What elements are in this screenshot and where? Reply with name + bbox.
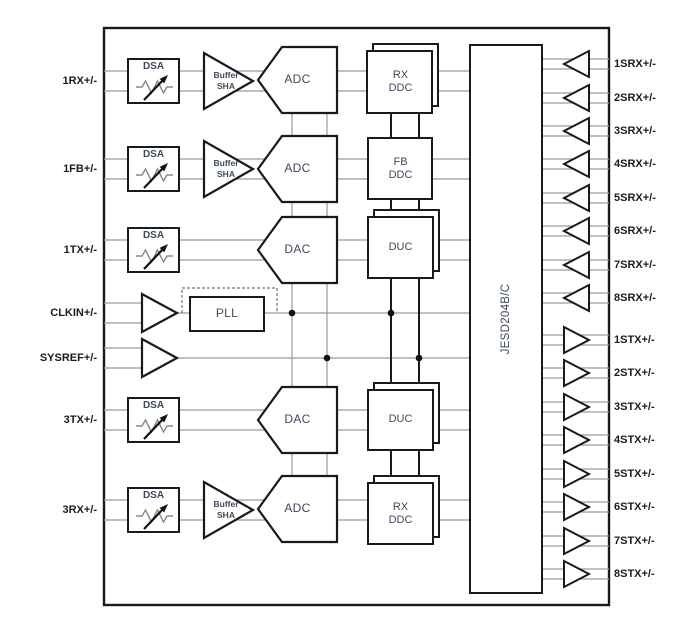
pll-label: PLL — [190, 306, 264, 320]
pin-label-1rx: 1RX+/- — [0, 73, 97, 89]
pin-label-2srx: 2SRX+/- — [614, 90, 676, 106]
buffer-sha-label-1fb: Buffer SHA — [205, 158, 247, 179]
pin-label-1tx: 1TX+/- — [0, 242, 97, 258]
buffer-sha-label-1rx: Buffer SHA — [205, 70, 247, 91]
junction-dot — [289, 310, 296, 317]
pin-label-8srx: 8SRX+/- — [614, 290, 676, 306]
srx-buffer-3 — [564, 118, 589, 144]
stx-buffer-3 — [564, 394, 589, 420]
dsa-label-3rx: DSA — [128, 490, 179, 501]
dsa-label-3tx: DSA — [128, 400, 179, 411]
stx-buffer-1 — [564, 327, 589, 353]
pin-label-3srx: 3SRX+/- — [614, 123, 676, 139]
srx-buffer-7 — [564, 252, 589, 278]
pin-label-6srx: 6SRX+/- — [614, 223, 676, 239]
junction-dot — [416, 355, 423, 362]
pin-label-4srx: 4SRX+/- — [614, 156, 676, 172]
pin-label-4stx: 4STX+/- — [614, 432, 676, 448]
pin-label-1stx: 1STX+/- — [614, 332, 676, 348]
pin-label-3rx: 3RX+/- — [0, 502, 97, 518]
adc-label-1rx: ADC — [258, 72, 337, 86]
junction-dot — [388, 310, 395, 317]
stx-buffer-6 — [564, 494, 589, 520]
dac-label-1tx: DAC — [258, 242, 337, 256]
buffer-sha-label-3rx: Buffer SHA — [205, 499, 247, 520]
clkin-buffer-icon — [142, 294, 177, 332]
rx-ddc-label-1rx: RX DDC — [368, 69, 433, 95]
pin-label-3tx: 3TX+/- — [0, 412, 97, 428]
diagram-svg — [0, 0, 680, 628]
stx-buffer-7 — [564, 528, 589, 554]
pin-label-sysref: SYSREF+/- — [0, 350, 97, 366]
stx-buffer-5 — [564, 461, 589, 487]
pin-label-5stx: 5STX+/- — [614, 466, 676, 482]
srx-buffer-1 — [564, 51, 589, 77]
duc-label-3tx: DUC — [368, 413, 433, 426]
rx-ddc-label-3rx: RX DDC — [368, 501, 433, 527]
pin-label-clkin: CLKIN+/- — [0, 305, 97, 321]
stx-buffer-4 — [564, 427, 589, 453]
pin-label-1srx: 1SRX+/- — [614, 56, 676, 72]
junction-dot — [324, 355, 331, 362]
pin-label-7srx: 7SRX+/- — [614, 257, 676, 273]
pin-label-7stx: 7STX+/- — [614, 533, 676, 549]
stx-buffer-2 — [564, 360, 589, 386]
pin-label-1fb: 1FB+/- — [0, 161, 97, 177]
dsa-label-1tx: DSA — [128, 230, 179, 241]
jesd204-label: JESD204B/C — [500, 284, 512, 355]
fb-ddc-label: FB DDC — [368, 156, 433, 182]
duc-label-1tx: DUC — [368, 241, 433, 254]
srx-buffer-5 — [564, 185, 589, 211]
adc-label-1fb: ADC — [258, 161, 337, 175]
srx-buffer-6 — [564, 218, 589, 244]
dac-label-3tx: DAC — [258, 412, 337, 426]
stx-buffer-8 — [564, 561, 589, 587]
adc-label-3rx: ADC — [258, 501, 337, 515]
dsa-label-1fb: DSA — [128, 149, 179, 160]
srx-buffer-8 — [564, 285, 589, 311]
pin-label-6stx: 6STX+/- — [614, 499, 676, 515]
pin-label-2stx: 2STX+/- — [614, 365, 676, 381]
sysref-buffer-icon — [142, 339, 177, 377]
srx-buffer-4 — [564, 151, 589, 177]
srx-buffer-2 — [564, 85, 589, 111]
block-diagram-canvas: 1RX+/- 1FB+/- 1TX+/- CLKIN+/- SYSREF+/- … — [0, 0, 680, 628]
dsa-label-1rx: DSA — [128, 61, 179, 72]
pin-label-3stx: 3STX+/- — [614, 399, 676, 415]
pin-label-8stx: 8STX+/- — [614, 566, 676, 582]
pin-label-5srx: 5SRX+/- — [614, 190, 676, 206]
